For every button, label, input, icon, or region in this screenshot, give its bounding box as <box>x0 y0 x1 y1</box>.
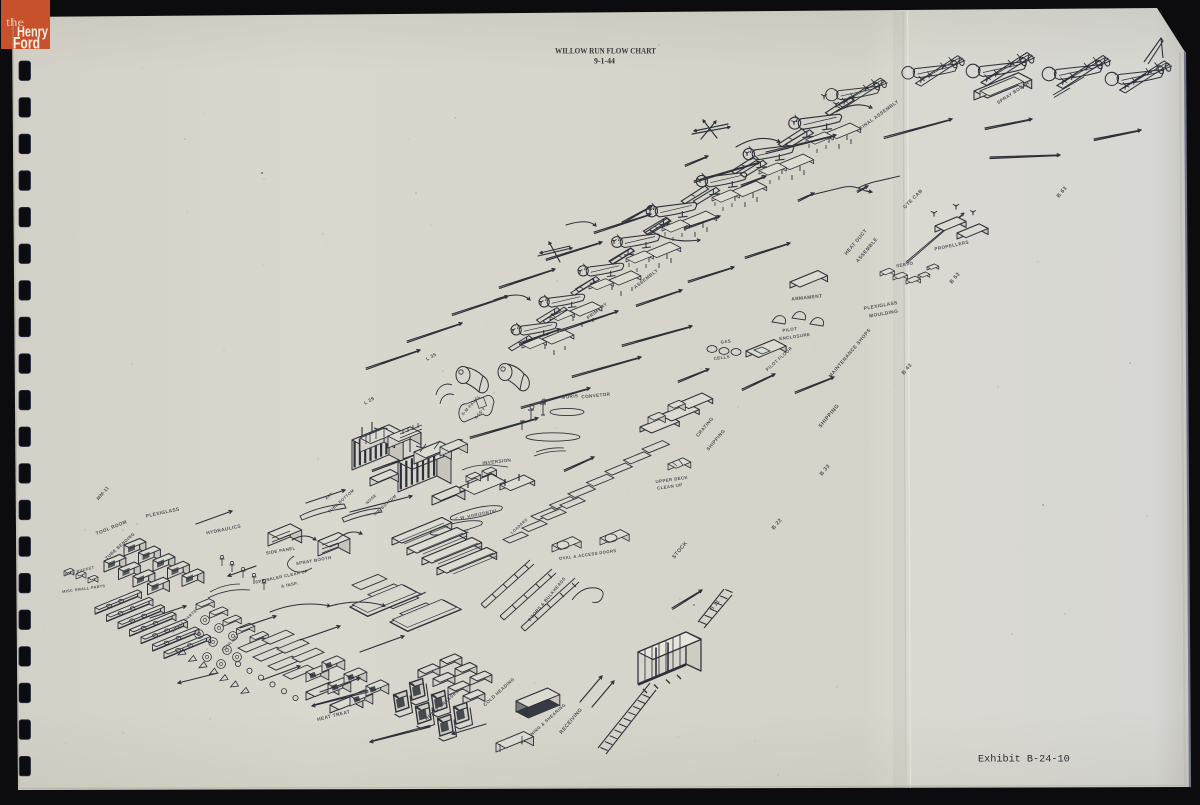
svg-text:9-1-44: 9-1-44 <box>594 57 616 66</box>
svg-text:Ford: Ford <box>13 34 40 53</box>
svg-text:WILLOW RUN FLOW CHART: WILLOW RUN FLOW CHART <box>555 46 656 56</box>
svg-text:Exhibit B-24-10: Exhibit B-24-10 <box>978 754 1070 766</box>
